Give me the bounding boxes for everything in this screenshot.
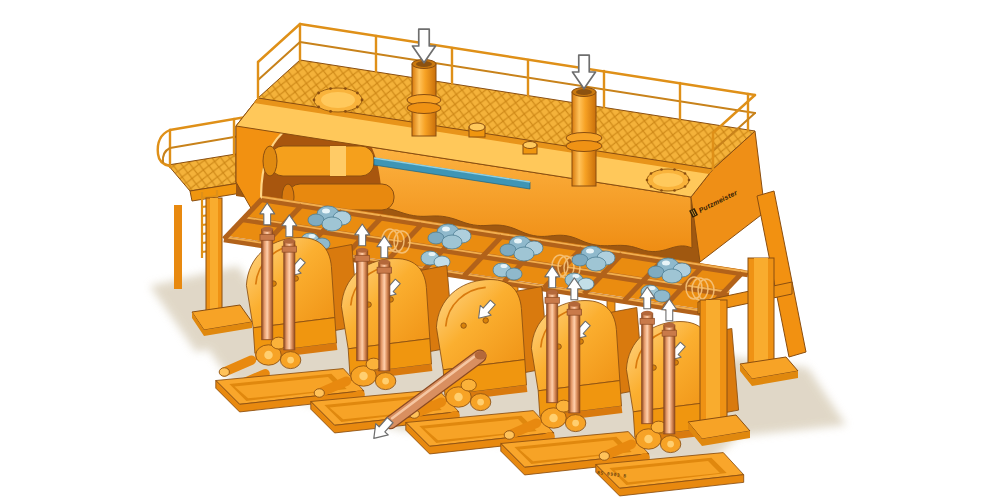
piston-cylinder (270, 146, 374, 176)
inlet-flow-arrow-down (572, 55, 595, 89)
inlet-flow-arrow-down (412, 29, 435, 63)
machine-illustration: Putzmeister (0, 0, 1000, 500)
piston-cylinder-band (330, 146, 346, 176)
walkway-rear-leg (174, 205, 182, 289)
solids-pump-figure: Putzmeister (0, 0, 1000, 500)
